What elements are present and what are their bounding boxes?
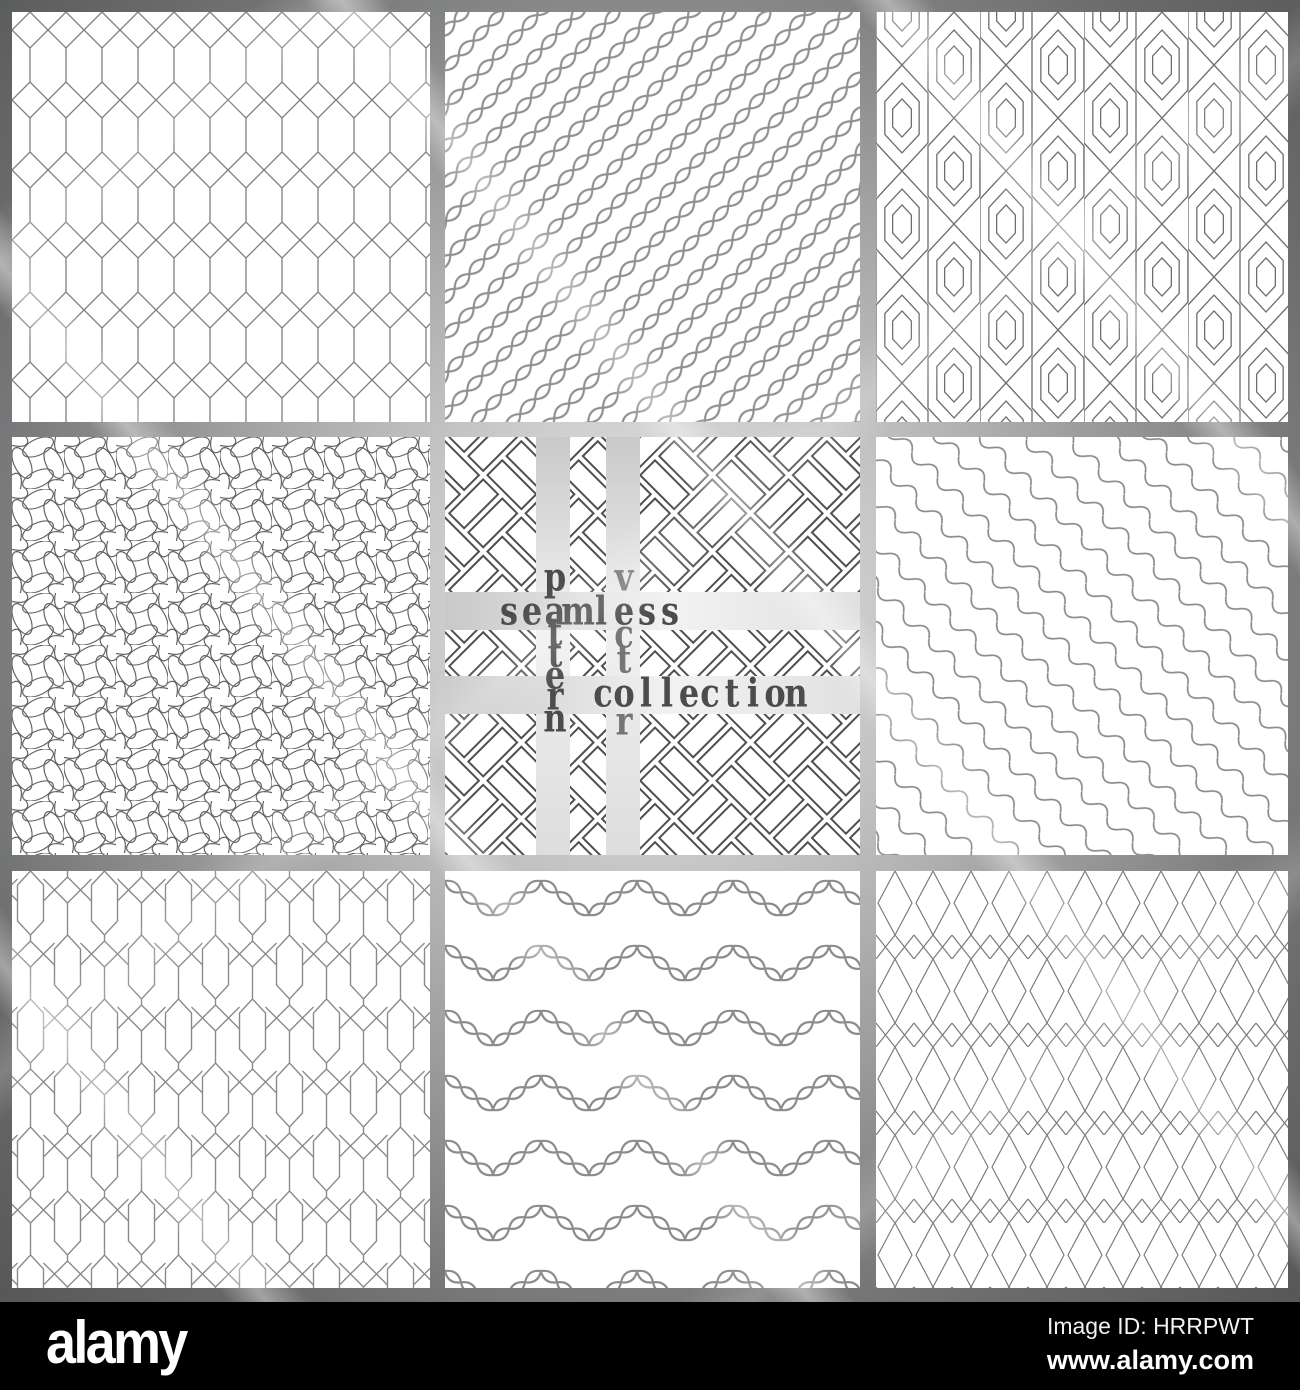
alamy-url-text: www.alamy.com	[1047, 1345, 1254, 1376]
stock-image-canvas: seamlessptternvctrcollection alamy Image…	[0, 0, 1300, 1390]
wavy-lines-pattern-image	[876, 437, 1288, 855]
crossword-letter-collection-9: n	[784, 675, 807, 714]
pattern-swatch-nested-hexagons	[876, 12, 1288, 422]
crossword-letter-pattern-0: p	[544, 559, 566, 598]
hexagon-trellis-pattern-image	[12, 871, 430, 1288]
crossword-letter-collection-2: l	[639, 675, 651, 714]
crossword-letter-vector-0: v	[615, 559, 634, 598]
crossword-letter-collection-3: l	[661, 675, 673, 714]
crossword-letter-collection-0: c	[593, 675, 612, 714]
pattern-grid-board: seamlessptternvctrcollection	[0, 0, 1300, 1302]
pattern-swatch-diamond-lattice	[12, 12, 430, 422]
crossword-letter-collection-8: o	[764, 675, 785, 714]
alamy-logo: alamy	[46, 1308, 186, 1377]
crossword-letter-seamless-1: e	[522, 593, 542, 632]
pattern-swatch-wavy-lines	[876, 437, 1288, 855]
diamond-lattice-pattern-image	[12, 12, 430, 422]
pattern-swatch-diagonal-rope	[445, 12, 860, 422]
watermark-bar: alamy Image ID: HRRPWT www.alamy.com	[0, 1302, 1300, 1390]
crossword-letter-seamless-4: l	[595, 593, 607, 632]
crossword-letter-seamless-7: s	[661, 593, 679, 632]
chevron-rope-pattern-image	[445, 871, 860, 1288]
nested-hexagons-pattern-image	[876, 12, 1288, 422]
crossword-letter-collection-4: e	[678, 675, 698, 714]
pattern-swatch-basketweave	[445, 437, 860, 855]
crossword-letter-collection-1: o	[613, 675, 634, 714]
crossword-letter-pattern-6: n	[543, 700, 566, 739]
crossword-letter-seamless-0: s	[500, 593, 518, 632]
crossword-letter-seamless-6: s	[638, 593, 656, 632]
pattern-swatch-petal-pinwheel	[12, 437, 430, 855]
crossword-letter-seamless-3: m	[561, 593, 595, 632]
petal-pinwheel-pattern-image	[12, 437, 430, 855]
pattern-swatch-hexagon-trellis	[12, 871, 430, 1288]
image-id-text: Image ID: HRRPWT	[1047, 1313, 1254, 1340]
crossword-letter-collection-6: t	[724, 675, 739, 714]
basketweave-pattern-image	[445, 437, 860, 855]
crossword-letter-collection-5: c	[700, 675, 719, 714]
diamond-net-pattern-image	[876, 871, 1288, 1288]
crossword-letter-collection-7: i	[747, 675, 759, 714]
diagonal-rope-pattern-image	[445, 12, 860, 422]
pattern-swatch-diamond-net	[876, 871, 1288, 1288]
pattern-swatch-chevron-rope	[445, 871, 860, 1288]
watermark-info: Image ID: HRRPWT www.alamy.com	[1047, 1313, 1254, 1376]
